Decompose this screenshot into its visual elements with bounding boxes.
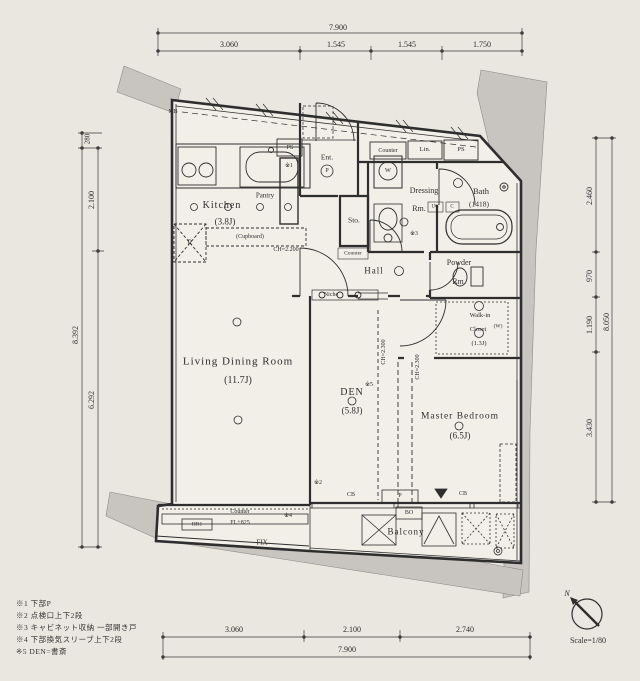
counter-top-label: Counter bbox=[378, 148, 397, 154]
scale-label: Scale=1/80 bbox=[570, 637, 606, 645]
dim-right-3: 1.190 bbox=[586, 316, 594, 334]
room-label-dressing: Dressing bbox=[410, 187, 438, 195]
walkin-line1: Walk-in bbox=[470, 313, 491, 320]
walkin-side: (W) bbox=[494, 324, 503, 330]
fridge-label: R bbox=[188, 240, 193, 247]
walkin-size: (1.3J) bbox=[472, 341, 487, 348]
room-label-master: Master Bedroom bbox=[421, 412, 499, 422]
dim-bottom-total: 7.900 bbox=[338, 646, 356, 654]
room-label-storage: Sto. bbox=[348, 216, 360, 224]
niche-label: Niche bbox=[324, 292, 338, 298]
note-2: ※2 点検口上下2段 bbox=[16, 610, 83, 621]
note-1: ※1 下部P bbox=[16, 598, 51, 609]
bo-box-label: BO bbox=[405, 510, 413, 516]
dim-top-2: 1.545 bbox=[327, 41, 345, 49]
hr-box-label: HR1 bbox=[192, 522, 202, 528]
dim-top-3: 1.545 bbox=[398, 41, 416, 49]
room-label-kitchen: Kitchen bbox=[203, 201, 242, 211]
powder-rm-suffix: Rm. bbox=[452, 278, 466, 286]
dim-left-total: 8.392 bbox=[72, 326, 80, 344]
north-arrow-icon bbox=[570, 597, 602, 629]
ceiling-height-master: CH=2.300 bbox=[415, 354, 421, 379]
pipe-space-right: PS bbox=[457, 147, 464, 154]
room-label-bath: Bath bbox=[473, 187, 489, 196]
linen-label: Lin. bbox=[420, 147, 431, 154]
den-note-ref: ※5 bbox=[365, 382, 373, 388]
north-label: N bbox=[564, 590, 569, 598]
note-ref-1: ※1 bbox=[285, 163, 293, 169]
pipe-space-left: PS bbox=[287, 145, 294, 151]
ceiling-height-den: CH=2.300 bbox=[381, 339, 387, 364]
walkin-line2: Closet bbox=[470, 327, 487, 334]
room-label-hall: Hall bbox=[364, 267, 384, 276]
porch-symbol: P bbox=[325, 168, 328, 174]
ceiling-height-kitchen: CH=2.200 bbox=[273, 247, 298, 253]
meter-box-label: MB bbox=[168, 109, 177, 115]
note-3: ※3 キャビネット収納 一部開き戸 bbox=[16, 622, 137, 633]
dim-right-total: 8.050 bbox=[603, 313, 611, 331]
master-size: (6.5J) bbox=[450, 432, 471, 441]
dim-left-1: 2.100 bbox=[88, 191, 96, 209]
washer-label: W bbox=[385, 168, 391, 175]
dim-bottom-1: 3.060 bbox=[225, 626, 243, 634]
pantry-label: Pantry bbox=[256, 193, 274, 200]
dim-left-2: 6.292 bbox=[88, 391, 96, 409]
counter-hall-label: Counter bbox=[344, 251, 362, 257]
fix-window-label: FIX bbox=[256, 540, 267, 547]
dim-right-1: 2.460 bbox=[586, 187, 594, 205]
dim-bottom-3: 2.740 bbox=[456, 626, 474, 634]
floor-level-label: FL+825 bbox=[230, 520, 249, 526]
dim-right-4: 3.430 bbox=[586, 419, 594, 437]
uc-box-label: UC bbox=[432, 205, 439, 210]
room-label-powder: Powder bbox=[447, 259, 471, 267]
dressing-rm-suffix: Rm. bbox=[412, 205, 426, 213]
p-box-label: P bbox=[398, 493, 401, 499]
note-ref-2: ※2 bbox=[314, 480, 322, 486]
note-ref-4: ※4 bbox=[284, 513, 292, 519]
bath-size: (1418) bbox=[469, 200, 489, 208]
note-4: ※4 下部換気スリーブ上下2段 bbox=[16, 634, 122, 645]
dim-top-total: 7.900 bbox=[329, 24, 347, 32]
dim-top-4: 1.750 bbox=[473, 41, 491, 49]
floorplan-page: MB PS ※1 Pantry Kitchen (3.8J) (Cupboard… bbox=[0, 0, 640, 681]
cupboard-label: (Cupboard) bbox=[236, 234, 264, 240]
cb-left-label: CB bbox=[347, 492, 355, 498]
room-label-balcony: Balcony bbox=[388, 528, 425, 537]
c-box-label: C bbox=[450, 205, 453, 210]
cb-right-label: CB bbox=[459, 491, 467, 497]
counter-bottom-label: Counter bbox=[230, 509, 249, 515]
room-label-entrance: Ent. bbox=[321, 153, 333, 161]
dim-left-offset: 280 bbox=[85, 134, 92, 145]
kitchen-size: (3.8J) bbox=[215, 218, 236, 227]
note-ref-3: ※3 bbox=[410, 231, 418, 237]
room-label-living: Living Dining Room bbox=[183, 357, 293, 368]
dim-right-2: 970 bbox=[586, 270, 594, 282]
living-size: (11.7J) bbox=[224, 376, 252, 386]
floorplan-linework bbox=[0, 0, 640, 681]
dim-top-1: 3.060 bbox=[220, 41, 238, 49]
note-5: ※5 DEN=書斎 bbox=[16, 646, 67, 657]
dim-bottom-2: 2.100 bbox=[343, 626, 361, 634]
room-label-den: DEN bbox=[340, 388, 364, 398]
den-size: (5.8J) bbox=[342, 407, 363, 416]
